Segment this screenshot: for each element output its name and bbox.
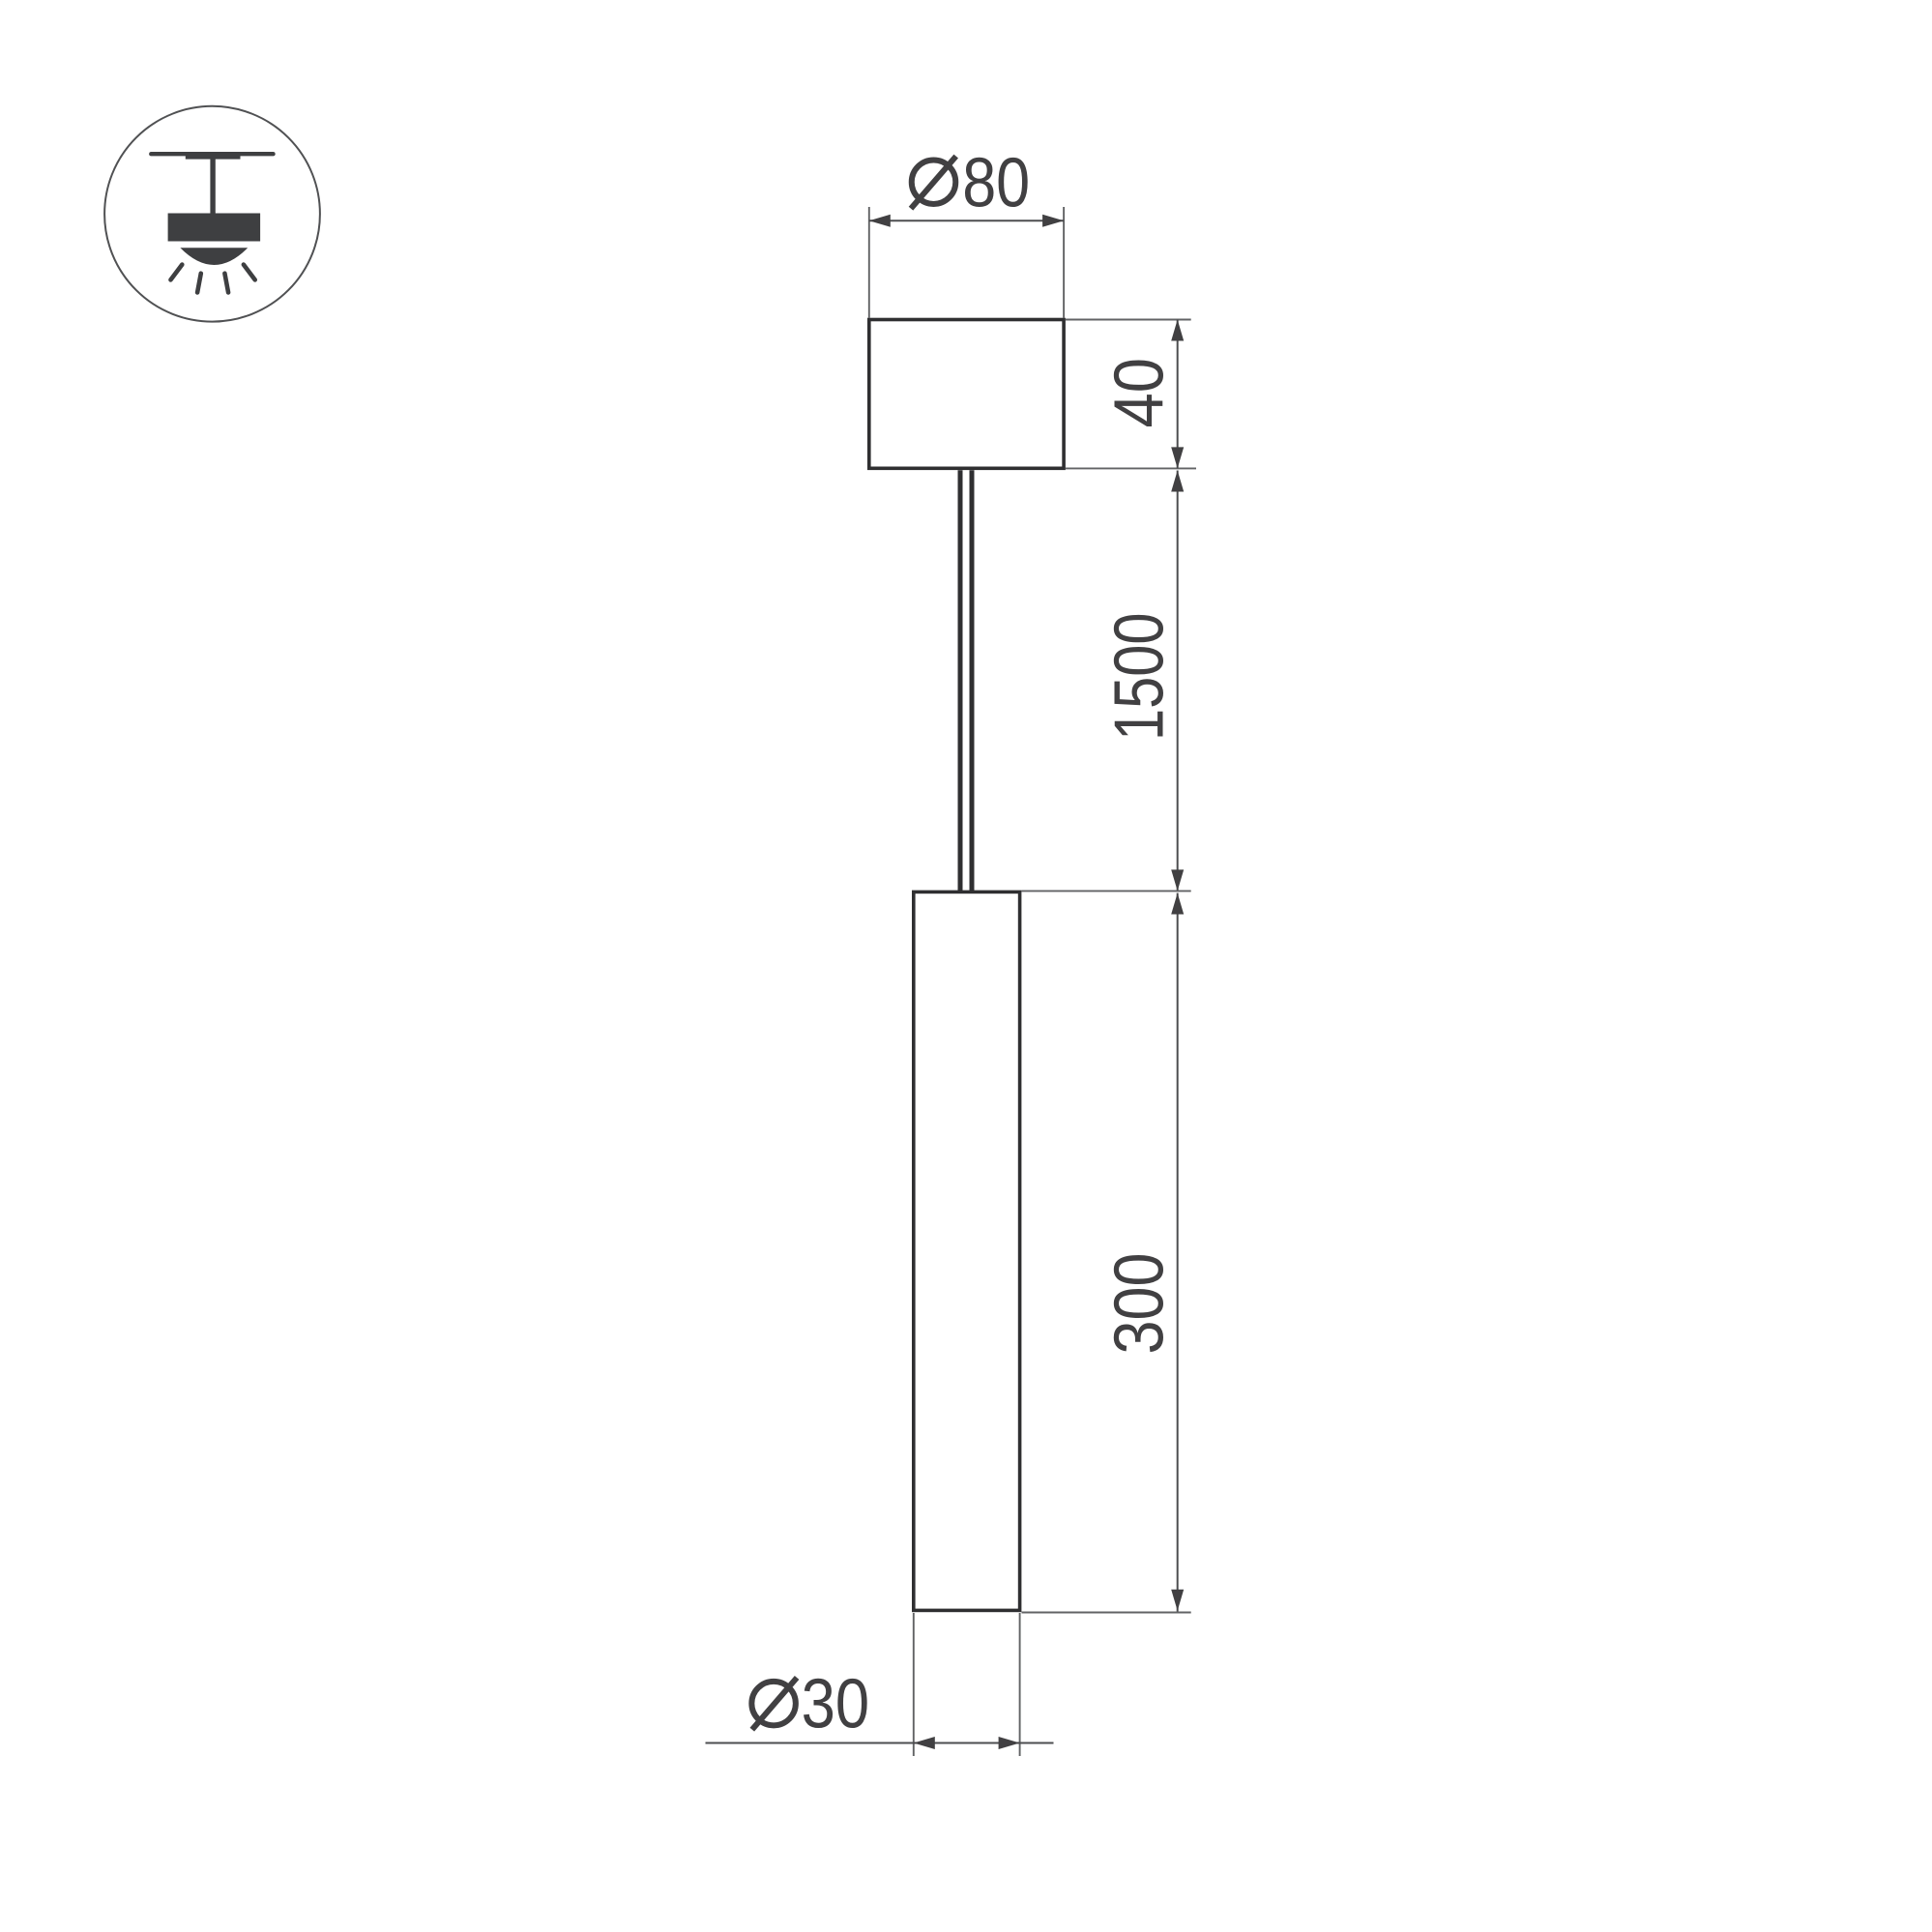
svg-text:80: 80 (962, 144, 1030, 222)
svg-text:30: 30 (802, 1665, 870, 1743)
svg-text:1500: 1500 (1100, 613, 1179, 742)
svg-text:300: 300 (1100, 1253, 1179, 1355)
svg-text:40: 40 (1100, 358, 1179, 428)
